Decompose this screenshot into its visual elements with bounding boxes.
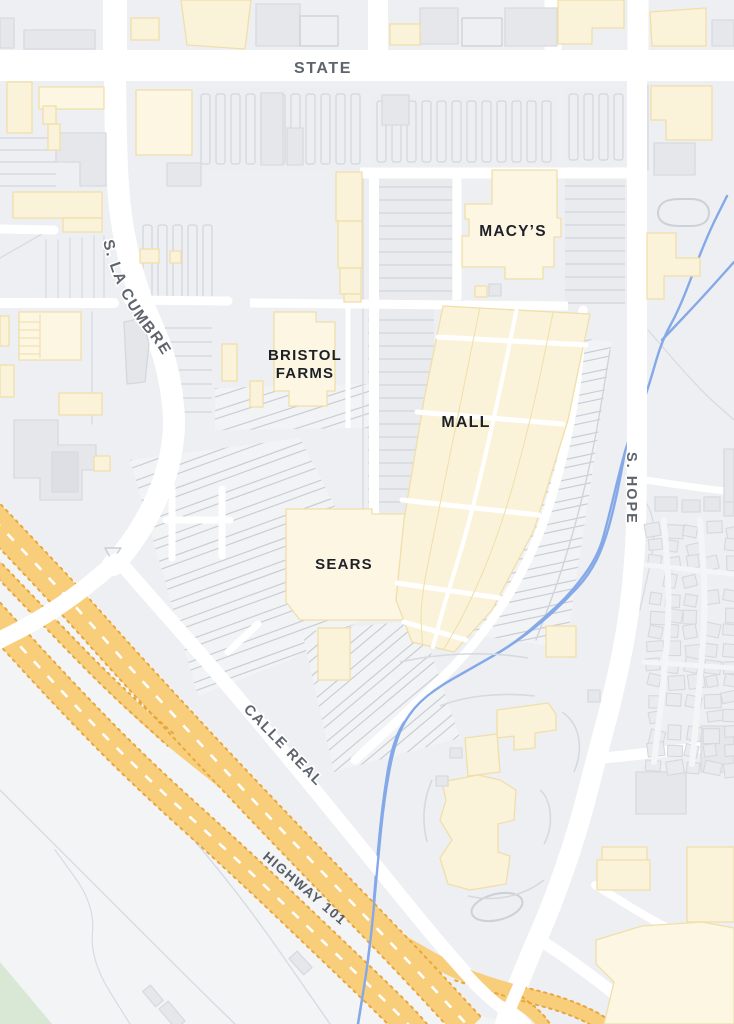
svg-text:S. HOPE: S. HOPE (623, 452, 639, 525)
svg-text:BRISTOL: BRISTOL (268, 347, 342, 364)
svg-text:STATE: STATE (294, 60, 352, 77)
svg-text:SEARS: SEARS (315, 556, 373, 573)
svg-text:FARMS: FARMS (276, 365, 335, 382)
svg-text:MACY’S: MACY’S (479, 223, 546, 240)
svg-text:MALL: MALL (441, 414, 490, 431)
